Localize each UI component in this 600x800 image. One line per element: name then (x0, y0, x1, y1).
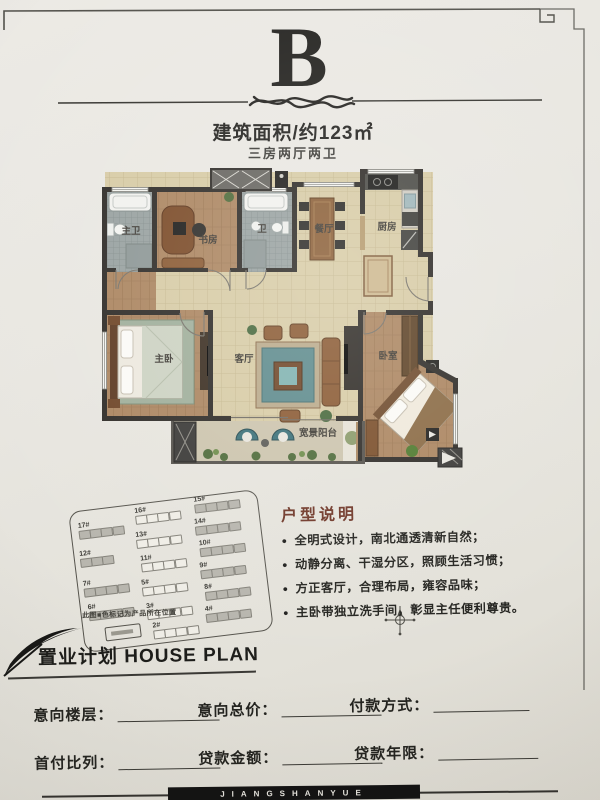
form-field-payment-method: 付款方式： (349, 692, 529, 716)
form-field-floor: 意向楼层： (33, 701, 219, 725)
form-field-loan-term: 贷款年限： (354, 740, 538, 764)
fill-in-line (433, 709, 529, 713)
fill-in-line (438, 757, 538, 761)
brand-bar: JIANGSHANYUE (168, 785, 420, 800)
form-field-down-payment: 首付比列： (34, 749, 220, 773)
house-plan-form: 意向楼层： 意向总价： 付款方式： 首付比列： 贷款金额： 贷款年限： (0, 0, 600, 800)
brochure-page: B 建筑面积/约123㎡ 三房两厅两卫 (0, 0, 600, 800)
brand-name: JIANGSHANYUE (220, 788, 368, 799)
